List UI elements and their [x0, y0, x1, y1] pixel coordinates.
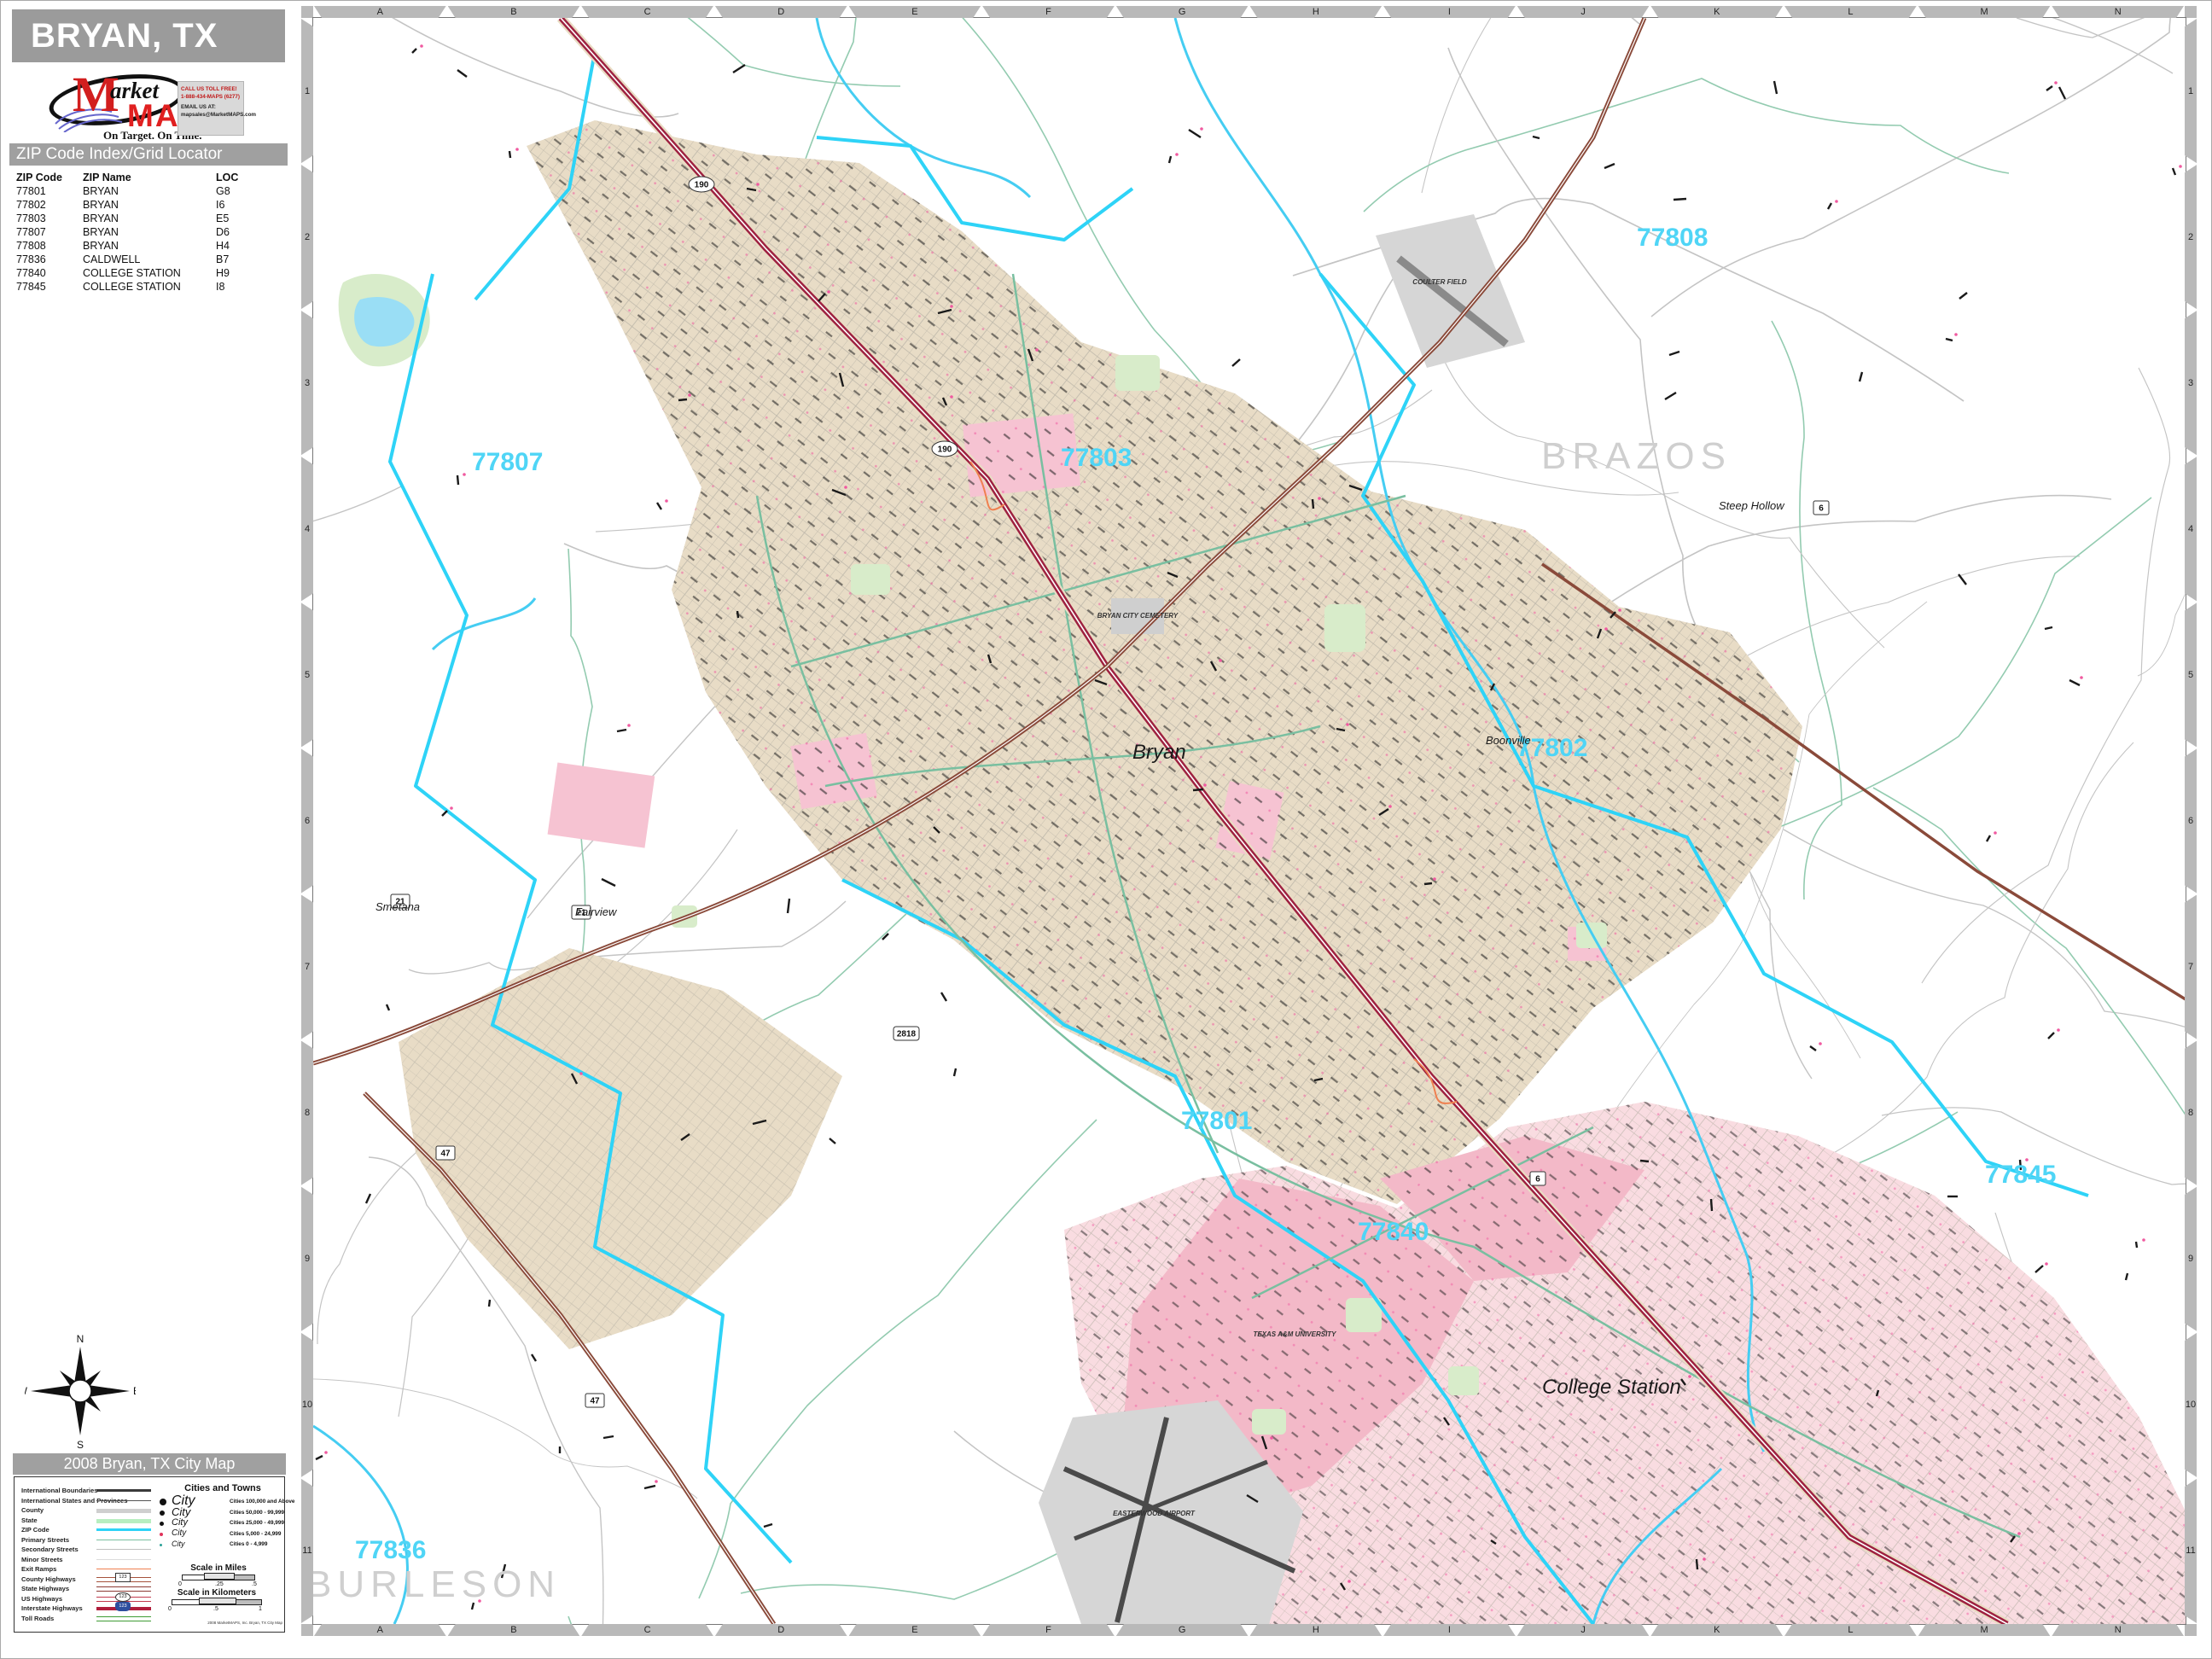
- street-dash: [489, 1300, 490, 1307]
- zip-table-row: 77802BRYANI6: [16, 198, 281, 212]
- scale-title: Scale in Miles: [156, 1563, 281, 1573]
- address-tick: [1348, 1580, 1351, 1583]
- address-tick: [1219, 659, 1222, 662]
- grid-col-I-bottom: I: [1383, 1624, 1516, 1636]
- legend-item-12: Interstate Highways123: [21, 1604, 151, 1614]
- svg-text:6: 6: [1819, 504, 1824, 514]
- legend-swatch: [96, 1569, 151, 1569]
- street-dash: [1169, 156, 1171, 163]
- street-dash: [954, 1068, 956, 1076]
- poi-label-cemetery: BRYAN CITY CEMETERY: [1097, 612, 1179, 620]
- grid-row-1-right: 1: [2185, 19, 2197, 163]
- svg-text:6: 6: [1535, 1175, 1540, 1185]
- street-dash: [764, 1524, 772, 1527]
- grid-col-I: I: [1383, 6, 1516, 18]
- zip-table-row: 77803BRYANE5: [16, 212, 281, 225]
- legend-swatch: [96, 1519, 151, 1523]
- county-label-burleson: BURLESON: [313, 1563, 561, 1605]
- address-tick: [655, 1480, 658, 1483]
- street-dash: [1193, 789, 1203, 790]
- compass-rose: N S W E: [25, 1330, 136, 1452]
- legend-swatch: [96, 1540, 151, 1540]
- street-dash: [644, 1486, 655, 1488]
- scale-tick: .5: [252, 1581, 257, 1587]
- street-dash: [737, 611, 738, 618]
- city-dot: [160, 1522, 164, 1526]
- address-tick: [324, 1451, 328, 1454]
- grid-col-B: B: [448, 6, 580, 18]
- street-dash: [617, 730, 626, 731]
- street-dash: [457, 70, 467, 77]
- address-tick: [688, 393, 691, 397]
- legend-item-13: Toll Roads: [21, 1615, 151, 1624]
- street-dash: [1669, 352, 1679, 355]
- legend-swatch: [96, 1509, 151, 1513]
- address-tick: [1346, 723, 1349, 726]
- address-tick: [2045, 1262, 2048, 1266]
- street-dash: [657, 503, 661, 509]
- contact-line3: EMAIL US AT:: [181, 103, 241, 111]
- street-dash: [442, 811, 447, 816]
- address-tick: [2054, 81, 2058, 84]
- primary-road: [568, 1616, 696, 1624]
- address-tick: [1954, 333, 1958, 336]
- street-dash: [603, 1436, 614, 1438]
- contact-line4: mapsales@MarketMAPS.com: [181, 111, 241, 119]
- legend-swatch: [96, 1489, 151, 1492]
- grid-col-A-bottom: A: [314, 1624, 446, 1636]
- grid-row-7-right: 7: [2185, 895, 2197, 1039]
- zip-table-header: ZIP CodeZIP NameLOC: [16, 171, 281, 184]
- grid-row-5: 5: [301, 602, 313, 747]
- grid-row-8: 8: [301, 1041, 313, 1185]
- legend-item-3: State: [21, 1516, 151, 1526]
- contact-line2: 1-888-434-MAPS (6277): [181, 93, 241, 101]
- town-label-steep-hollow: Steep Hollow: [1719, 499, 1785, 512]
- street-dash: [2126, 1273, 2128, 1280]
- street-dash: [457, 475, 458, 485]
- legend-shield-interstate: 123: [115, 1602, 131, 1611]
- address-tick: [2142, 1238, 2145, 1242]
- address-tick: [1203, 783, 1207, 787]
- address-tick: [1318, 497, 1321, 500]
- minor-road: [1422, 18, 1626, 193]
- address-tick: [1175, 153, 1179, 156]
- city-dot: [160, 1499, 166, 1505]
- legend-shield-oval: 123: [115, 1592, 131, 1602]
- street-dash: [509, 151, 510, 158]
- contact-box: CALL US TOLL FREE! 1-888-434-MAPS (6277)…: [178, 81, 244, 136]
- grid-col-D: D: [715, 6, 847, 18]
- legend-item-1: International States and Provinces: [21, 1497, 151, 1506]
- address-tick: [1035, 348, 1039, 352]
- legend-item-5: Primary Streets: [21, 1536, 151, 1545]
- street-dash: [1604, 164, 1615, 168]
- grid-col-F-bottom: F: [982, 1624, 1115, 1636]
- street-dash: [366, 1194, 370, 1203]
- grid-row-9-right: 9: [2185, 1187, 2197, 1331]
- address-tick: [1433, 877, 1436, 881]
- street-dash: [788, 899, 789, 913]
- legend-item-2: County: [21, 1506, 151, 1516]
- city-map: 190 190 21 21 47 47 6 6 2818 77808 77807…: [313, 18, 2186, 1624]
- grid-row-5-right: 5: [2185, 602, 2197, 747]
- address-tick: [950, 305, 953, 308]
- city-label-college-station: College Station: [1542, 1376, 1681, 1399]
- legend-item-6: Secondary Streets: [21, 1545, 151, 1555]
- grid-col-A: A: [314, 6, 446, 18]
- city-dot: [160, 1511, 165, 1516]
- address-tick: [1703, 1557, 1706, 1561]
- street-dash: [1313, 499, 1313, 509]
- grid-col-J-bottom: J: [1517, 1624, 1650, 1636]
- address-tick: [844, 486, 847, 489]
- zip-index-table: ZIP CodeZIP NameLOC77801BRYANG877802BRYA…: [16, 171, 281, 294]
- grid-col-M: M: [1918, 6, 2051, 18]
- zip-label-77808: 77808: [1637, 224, 1708, 252]
- zip-label-77803: 77803: [1061, 444, 1132, 472]
- compass-e: E: [133, 1385, 136, 1397]
- street-dash: [1810, 1046, 1816, 1051]
- zip-table-row: 77836CALDWELLB7: [16, 253, 281, 266]
- urban-areas: [399, 120, 2186, 1624]
- grid-col-E-bottom: E: [849, 1624, 981, 1636]
- grid-row-2: 2: [301, 165, 313, 309]
- street-dash: [1533, 137, 1540, 138]
- poi-label-easterwood: EASTERWOOD AIRPORT: [1113, 1510, 1196, 1517]
- legend-item-7: Minor Streets: [21, 1556, 151, 1565]
- grid-col-G-bottom: G: [1116, 1624, 1249, 1636]
- grid-row-11-right: 11: [2185, 1479, 2197, 1623]
- grid-col-J: J: [1517, 6, 1650, 18]
- address-tick: [627, 724, 631, 727]
- grid-row-8-right: 8: [2185, 1041, 2197, 1185]
- address-tick: [665, 499, 668, 503]
- grid-corner: [2185, 6, 2197, 18]
- address-tick: [2179, 165, 2182, 168]
- street-dash: [1189, 130, 1201, 137]
- grid-col-L: L: [1784, 6, 1917, 18]
- address-tick: [2080, 676, 2083, 679]
- minor-road: [313, 18, 678, 117]
- grid-row-3: 3: [301, 311, 313, 455]
- street-dash: [1959, 574, 1966, 585]
- street-dash: [1946, 339, 1953, 341]
- legend-swatch: [96, 1549, 151, 1550]
- grid-corner: [301, 1624, 313, 1636]
- address-tick: [579, 1072, 583, 1075]
- zip-table-row: 77840COLLEGE STATIONH9: [16, 266, 281, 280]
- grid-col-N: N: [2052, 6, 2184, 18]
- scale-title: Scale in Kilometers: [146, 1588, 288, 1598]
- address-tick: [827, 290, 830, 294]
- address-tick: [1270, 1436, 1273, 1440]
- zip-table-row: 77808BRYANH4: [16, 239, 281, 253]
- street-dash: [1828, 203, 1831, 209]
- grid-row-6-right: 6: [2185, 748, 2197, 893]
- grid-corner: [301, 6, 313, 18]
- zip-label-77807: 77807: [472, 448, 543, 476]
- address-tick: [1835, 200, 1838, 203]
- address-tick: [950, 395, 953, 399]
- zip-label-77845: 77845: [1985, 1161, 2056, 1189]
- street-dash: [2136, 1242, 2137, 1248]
- grid-row-1: 1: [301, 19, 313, 163]
- pink-district: [548, 762, 655, 847]
- street-dash: [2045, 627, 2052, 629]
- grid-col-H-bottom: H: [1250, 1624, 1382, 1636]
- grid-row-7: 7: [301, 895, 313, 1039]
- grid-row-9: 9: [301, 1187, 313, 1331]
- address-tick: [1618, 608, 1621, 612]
- address-tick: [515, 148, 519, 151]
- street-dash: [532, 1354, 536, 1361]
- zip-table-row: 77845COLLEGE STATIONI8: [16, 280, 281, 294]
- legend-item-4: ZIP Code: [21, 1526, 151, 1535]
- street-dash: [2046, 86, 2052, 90]
- street-dash: [2035, 1266, 2043, 1272]
- grid-col-M-bottom: M: [1918, 1624, 2051, 1636]
- zip-index-header: ZIP Code Index/Grid Locator: [9, 143, 288, 166]
- legend-swatch: [96, 1616, 151, 1621]
- address-tick: [1388, 805, 1392, 808]
- grid-corner: [2185, 1624, 2197, 1636]
- grid-col-H: H: [1250, 6, 1382, 18]
- legend-shield-square: 123: [115, 1573, 131, 1582]
- grid-col-C-bottom: C: [581, 1624, 713, 1636]
- svg-text:47: 47: [440, 1150, 451, 1159]
- grid-col-K: K: [1650, 6, 1783, 18]
- grid-row-2-right: 2: [2185, 165, 2197, 309]
- marketmaps-logo: M arket MAPS On Target. On Time. America…: [32, 73, 288, 141]
- street-dash: [1232, 359, 1240, 366]
- svg-text:190: 190: [695, 181, 709, 190]
- town-label-boonville: Boonville: [1486, 734, 1531, 747]
- street-dash: [316, 1456, 323, 1459]
- scale-bar: [172, 1599, 262, 1605]
- minor-road: [1004, 18, 1639, 24]
- poi-label-coulter: COULTER FIELD: [1412, 278, 1467, 286]
- street-dash: [1697, 1559, 1697, 1569]
- svg-text:190: 190: [938, 445, 952, 455]
- zip-label-77801: 77801: [1181, 1107, 1252, 1135]
- street-dash: [1959, 293, 1967, 299]
- street-dash: [1424, 883, 1432, 884]
- page-title: BRYAN, TX: [12, 9, 285, 62]
- zip-label-77840: 77840: [1358, 1218, 1429, 1246]
- grid-row-6: 6: [301, 748, 313, 893]
- scale-bar: [182, 1575, 255, 1580]
- legend-item-11: US Highways123: [21, 1595, 151, 1604]
- town-label-fairview: Fairview: [575, 905, 618, 918]
- address-tick: [2017, 1532, 2021, 1535]
- street-dash: [1860, 372, 1862, 381]
- legend-item-10: State Highways: [21, 1585, 151, 1594]
- address-tick: [420, 44, 423, 48]
- minor-road: [1705, 18, 2173, 73]
- address-tick: [1200, 127, 1203, 131]
- street-dash: [829, 1138, 835, 1144]
- street-dash: [2048, 1033, 2054, 1039]
- minor-road: [1922, 368, 2170, 983]
- address-tick: [463, 473, 466, 476]
- city-dot: [160, 1533, 163, 1536]
- scale-tick: .5: [213, 1606, 218, 1612]
- scale-tick: .25: [215, 1581, 224, 1587]
- grid-col-N-bottom: N: [2052, 1624, 2184, 1636]
- legend-item-9: County Highways123: [21, 1575, 151, 1585]
- legend-swatch: [96, 1528, 151, 1531]
- grid-col-K-bottom: K: [1650, 1624, 1783, 1636]
- street-dash: [1711, 1199, 1712, 1211]
- street-dash: [602, 879, 615, 886]
- legend-swatch: [96, 1559, 151, 1560]
- address-tick: [756, 183, 760, 186]
- grid-col-B-bottom: B: [448, 1624, 580, 1636]
- zip-label-77836: 77836: [355, 1536, 426, 1564]
- grid-col-D-bottom: D: [715, 1624, 847, 1636]
- street-dash: [1774, 81, 1777, 94]
- town-label-smetana: Smetana: [375, 900, 420, 913]
- contact-line1: CALL US TOLL FREE!: [181, 85, 241, 93]
- zip-table-row: 77807BRYAND6: [16, 225, 281, 239]
- address-tick: [450, 806, 453, 810]
- minor-road: [313, 1379, 697, 1499]
- grid-row-4: 4: [301, 457, 313, 601]
- compass-s: S: [77, 1439, 84, 1451]
- map-page: BRYAN, TX M arket MAPS On Target. On Tim…: [0, 0, 2212, 1659]
- street-dash: [412, 49, 416, 53]
- street-dash: [678, 399, 687, 400]
- address-tick: [1819, 1042, 1822, 1045]
- scale-tick: 1: [259, 1606, 262, 1612]
- minor-road: [313, 486, 403, 835]
- minor-road: [1293, 199, 1964, 401]
- legend-title: 2008 Bryan, TX City Map: [13, 1453, 286, 1475]
- street-dash: [2173, 168, 2175, 175]
- city-dot: [160, 1544, 162, 1546]
- grid-row-11: 11: [301, 1479, 313, 1623]
- svg-text:47: 47: [590, 1397, 600, 1406]
- street-dash: [941, 992, 946, 1001]
- street-dash: [2059, 87, 2065, 99]
- address-tick: [1994, 831, 1997, 835]
- map-area: 190 190 21 21 47 47 6 6 2818 77808 77807…: [312, 17, 2186, 1625]
- grid-row-4-right: 4: [2185, 457, 2197, 601]
- grid-col-F: F: [982, 6, 1115, 18]
- address-tick: [1604, 627, 1608, 631]
- primary-road: [435, 18, 900, 86]
- county-label-brazos: BRAZOS: [1541, 435, 1732, 477]
- street-dash: [1640, 1161, 1649, 1161]
- legend-item-0: International Boundaries: [21, 1487, 151, 1496]
- street-dash: [2069, 680, 2080, 685]
- grid-col-G: G: [1116, 6, 1249, 18]
- street-dash: [1987, 835, 1990, 841]
- scale-tick: 0: [178, 1581, 182, 1587]
- grid-col-C: C: [581, 6, 713, 18]
- legend-cities-title: Cities and Towns: [172, 1483, 274, 1493]
- legend-item-8: Exit Ramps: [21, 1565, 151, 1575]
- street-dash: [733, 65, 745, 73]
- grid-col-E: E: [849, 6, 981, 18]
- grid-row-3-right: 3: [2185, 311, 2197, 455]
- address-tick: [1688, 1375, 1691, 1378]
- legend-copyright: 2008 MarketMAPS, Inc. Bryan, TX City Map: [129, 1621, 282, 1625]
- grid-col-L-bottom: L: [1784, 1624, 1917, 1636]
- scale-tick: 0: [168, 1606, 172, 1612]
- street-dash: [1674, 199, 1686, 200]
- street-dash: [1665, 393, 1676, 399]
- compass-w: W: [25, 1385, 28, 1397]
- svg-text:2818: 2818: [897, 1030, 917, 1039]
- grid-row-10: 10: [301, 1333, 313, 1477]
- zip-table-row: 77801BRYANG8: [16, 184, 281, 198]
- street-dash: [387, 1004, 389, 1010]
- legend-swatch: [96, 1586, 151, 1592]
- address-tick: [2057, 1028, 2060, 1032]
- grid-row-10-right: 10: [2185, 1333, 2197, 1477]
- minor-road: [2138, 49, 2186, 676]
- primary-road: [1364, 79, 2009, 212]
- legend-swatch: [96, 1500, 151, 1501]
- city-label-bryan: Bryan: [1132, 741, 1186, 764]
- poi-label-tamu: TEXAS A&M UNIVERSITY: [1253, 1330, 1336, 1338]
- minor-road: [2017, 18, 2186, 38]
- compass-n: N: [77, 1333, 84, 1345]
